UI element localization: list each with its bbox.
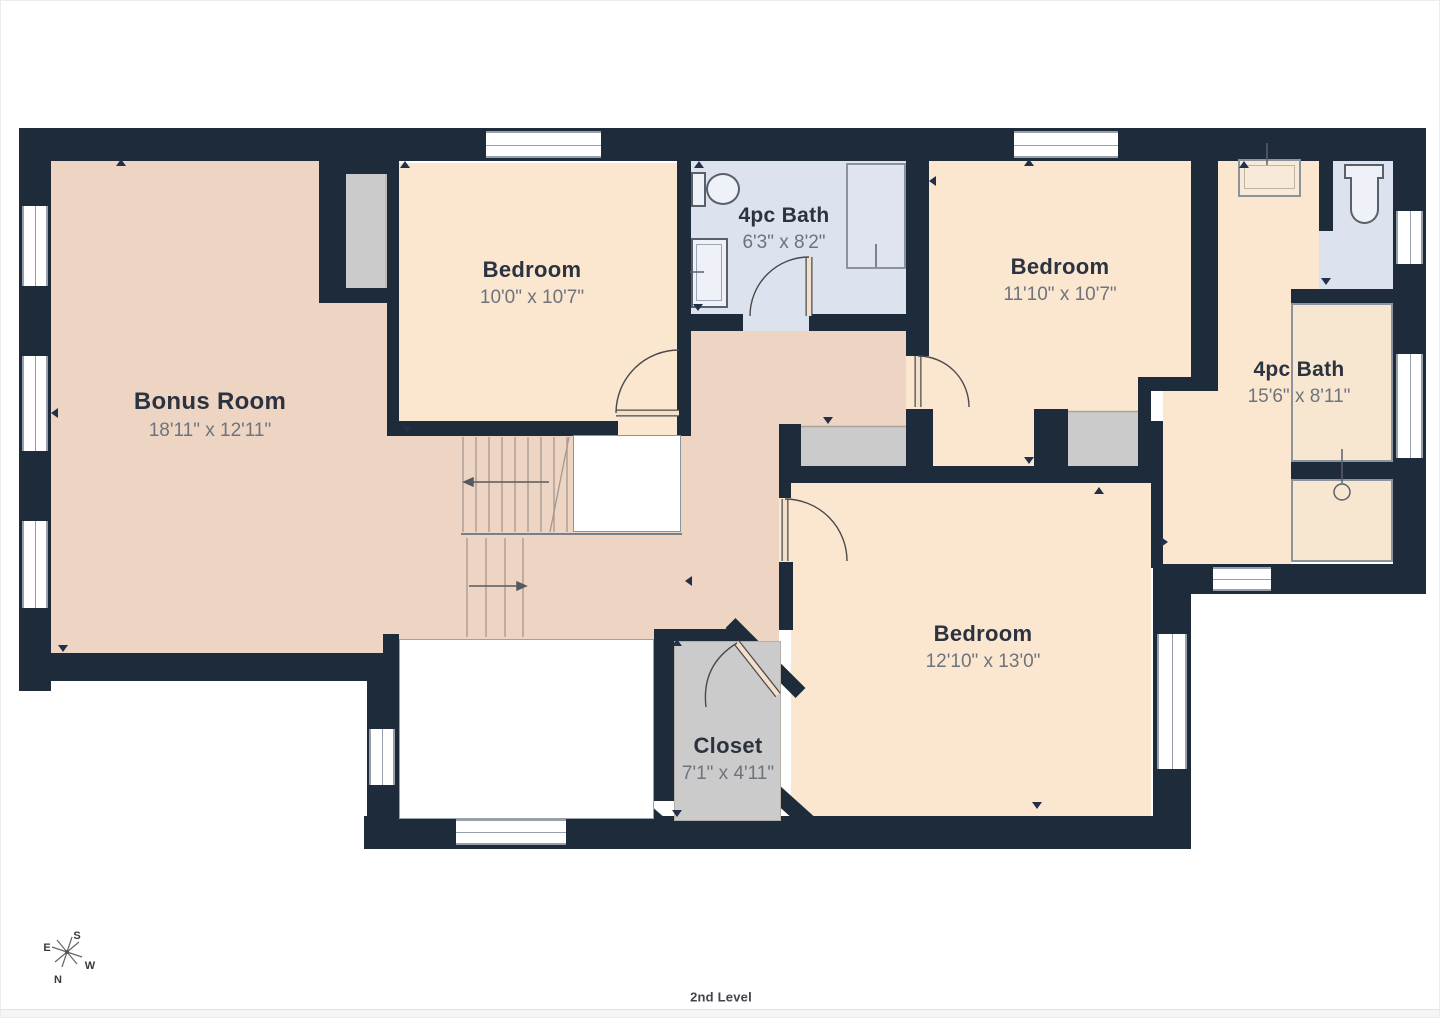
wall — [677, 314, 743, 331]
window — [22, 356, 48, 451]
room-label-bedroom-1: Bedroom 10'0" x 10'7" — [480, 257, 584, 309]
room-label-bath-2: 4pc Bath 15'6" x 8'11" — [1248, 358, 1351, 408]
room-dimensions: 6'3" x 8'2" — [738, 232, 829, 254]
room-dimensions: 7'1" x 4'11" — [682, 763, 774, 785]
compass-e: E — [43, 942, 50, 954]
tick-marker — [672, 639, 682, 646]
shower-icon — [1291, 479, 1393, 562]
bath2-floor — [1218, 289, 1291, 564]
toilet-icon — [706, 173, 740, 205]
level-label: 2nd Level — [690, 990, 752, 1005]
tick-marker — [1239, 161, 1249, 168]
tick-marker — [1024, 159, 1034, 166]
wall — [786, 466, 1163, 483]
toilet-icon — [691, 172, 706, 207]
wall — [19, 128, 1426, 161]
hallway-floor — [691, 426, 779, 641]
closet-floor — [674, 641, 781, 821]
room-name: Bedroom — [926, 621, 1041, 647]
tick-marker — [402, 426, 412, 433]
window — [1014, 131, 1118, 158]
tick-marker — [693, 304, 703, 311]
tick-marker — [929, 176, 936, 186]
wall — [906, 159, 929, 356]
tick-marker — [58, 645, 68, 652]
tick-marker — [51, 408, 58, 418]
open-to-below-void — [399, 639, 654, 819]
compass-n: N — [54, 974, 62, 986]
room-dimensions: 10'0" x 10'7" — [480, 287, 584, 309]
wall — [654, 629, 674, 801]
window — [1157, 634, 1187, 769]
hall-closet-nook — [801, 427, 906, 466]
sink-icon — [691, 238, 728, 308]
tick-marker — [1161, 537, 1168, 547]
wall — [383, 634, 399, 654]
wall — [387, 421, 618, 436]
room-name: Bedroom — [480, 257, 584, 283]
wall — [319, 161, 346, 303]
room-name: Bonus Room — [134, 388, 286, 416]
wall — [779, 562, 793, 630]
room-dimensions: 12'10" x 13'0" — [926, 651, 1041, 673]
stairwell-void — [573, 435, 681, 532]
bedroom2-closet-nook — [1068, 412, 1138, 466]
floor-plan: S E W N Bonus Room 18'11" x 12'11" Bedro… — [0, 0, 1440, 1018]
wall — [1034, 409, 1068, 466]
tick-marker — [1032, 802, 1042, 809]
window — [369, 729, 395, 785]
tick-marker — [685, 576, 692, 586]
room-name: Bedroom — [1003, 254, 1116, 280]
window — [1396, 211, 1423, 264]
window — [22, 521, 48, 608]
room-label-closet: Closet 7'1" x 4'11" — [682, 733, 774, 785]
wall — [387, 161, 399, 436]
compass-s: S — [73, 930, 80, 942]
tick-marker — [400, 161, 410, 168]
room-label-bedroom-2: Bedroom 11'10" x 10'7" — [1003, 254, 1116, 306]
room-label-bonus-room: Bonus Room 18'11" x 12'11" — [134, 388, 286, 442]
hallway-floor — [691, 331, 906, 426]
toilet-icon — [1350, 177, 1379, 224]
wall — [1153, 564, 1426, 594]
room-dimensions: 15'6" x 8'11" — [1248, 386, 1351, 408]
wall — [809, 314, 921, 331]
bath2-floor — [1163, 391, 1218, 564]
wall — [1291, 462, 1393, 479]
doorway — [906, 356, 929, 409]
tick-marker — [1024, 457, 1034, 464]
tick-marker — [1321, 278, 1331, 285]
tick-marker — [694, 161, 704, 168]
wall — [1291, 289, 1393, 303]
wall — [1191, 161, 1218, 391]
bedroom1-closet — [346, 174, 385, 288]
compass-w: W — [85, 960, 96, 972]
tick-marker — [116, 159, 126, 166]
window — [1396, 354, 1423, 458]
wall — [779, 483, 791, 498]
room-name: 4pc Bath — [1248, 358, 1351, 382]
doorway — [618, 421, 677, 436]
doorway — [779, 498, 791, 562]
tick-marker — [823, 417, 833, 424]
room-dimensions: 11'10" x 10'7" — [1003, 284, 1116, 306]
bonus-room-floor — [319, 303, 387, 653]
page-bottom-strip — [1, 1009, 1440, 1018]
window — [1213, 567, 1271, 591]
wall — [346, 161, 387, 174]
room-label-bath-1: 4pc Bath 6'3" x 8'2" — [738, 204, 829, 254]
tick-marker — [672, 810, 682, 817]
tick-marker — [1094, 487, 1104, 494]
wall — [1319, 161, 1333, 231]
room-name: 4pc Bath — [738, 204, 829, 228]
compass-rose: S E W N — [43, 930, 95, 986]
wall — [19, 653, 391, 681]
window — [456, 819, 566, 845]
room-name: Closet — [682, 733, 774, 759]
window — [486, 131, 601, 158]
room-label-bedroom-3: Bedroom 12'10" x 13'0" — [926, 621, 1041, 673]
wall — [1138, 391, 1151, 466]
room-dimensions: 18'11" x 12'11" — [134, 420, 286, 442]
shower-icon — [846, 163, 906, 269]
window — [22, 206, 48, 286]
wall — [677, 161, 691, 436]
doorway — [743, 314, 809, 331]
